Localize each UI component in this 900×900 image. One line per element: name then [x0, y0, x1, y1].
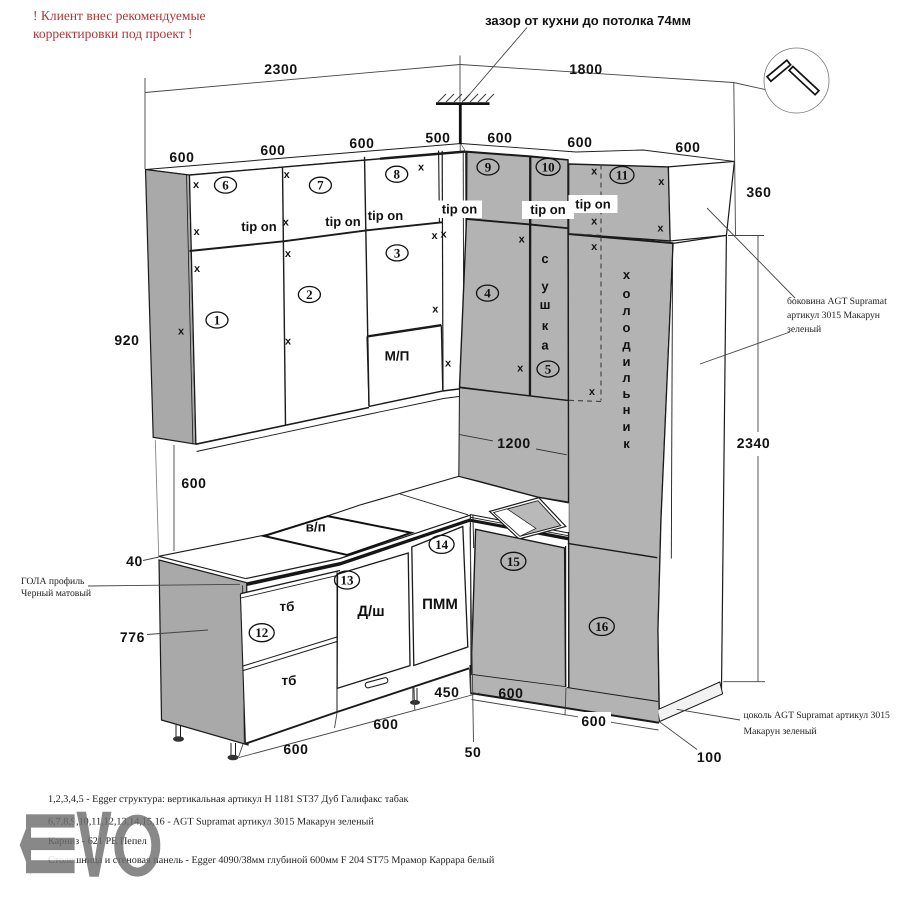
svg-text:у: у — [541, 279, 549, 294]
svg-text:с: с — [541, 251, 548, 266]
svg-text:x: x — [589, 386, 596, 398]
svg-text:л: л — [622, 370, 630, 385]
svg-text:600: 600 — [581, 713, 606, 729]
svg-text:2: 2 — [306, 287, 313, 302]
svg-text:7: 7 — [317, 178, 324, 193]
svg-text:600: 600 — [373, 716, 398, 732]
svg-text:2300: 2300 — [264, 61, 298, 77]
svg-text:tip on: tip on — [241, 219, 276, 234]
svg-text:tip on: tip on — [442, 202, 477, 217]
svg-text:x: x — [432, 304, 439, 316]
svg-text:x: x — [283, 217, 290, 229]
svg-text:x: x — [284, 169, 291, 181]
svg-text:16: 16 — [595, 619, 609, 634]
svg-text:н: н — [623, 402, 631, 417]
svg-text:x: x — [519, 234, 526, 246]
svg-text:д: д — [622, 337, 631, 352]
svg-text:и: и — [623, 354, 631, 369]
svg-text:x: x — [445, 358, 452, 370]
svg-text:6: 6 — [222, 178, 229, 193]
svg-text:40: 40 — [126, 553, 143, 569]
svg-text:! Клиент внес рекомендуемые: ! Клиент внес рекомендуемые — [33, 8, 206, 23]
svg-text:50: 50 — [465, 744, 482, 760]
svg-text:Д/ш: Д/ш — [357, 603, 384, 620]
svg-text:тб: тб — [282, 673, 297, 688]
svg-text:к: к — [623, 436, 630, 451]
svg-text:600: 600 — [181, 475, 206, 491]
svg-text:л: л — [622, 303, 630, 318]
svg-text:Черный матовый: Черный матовый — [21, 588, 91, 599]
svg-text:ГОЛА профиль: ГОЛА профиль — [21, 576, 85, 587]
svg-text:x: x — [418, 162, 425, 174]
svg-text:8: 8 — [393, 167, 400, 182]
svg-text:15: 15 — [507, 554, 521, 569]
svg-text:ш: ш — [540, 297, 551, 312]
svg-text:600: 600 — [675, 139, 700, 155]
svg-text:Столешница и стеновая панель -: Столешница и стеновая панель - Egger 409… — [48, 855, 495, 866]
svg-text:x: x — [285, 248, 292, 260]
svg-text:x: x — [193, 226, 200, 238]
svg-text:2340: 2340 — [737, 435, 771, 451]
svg-text:ПММ: ПММ — [422, 596, 458, 613]
svg-text:x: x — [591, 216, 598, 228]
svg-text:13: 13 — [341, 573, 355, 588]
svg-text:зеленый: зеленый — [787, 324, 821, 335]
svg-text:артикул 3015 Макарун: артикул 3015 Макарун — [787, 310, 880, 321]
svg-text:x: x — [591, 241, 598, 253]
svg-text:450: 450 — [434, 684, 459, 700]
svg-text:о: о — [623, 286, 631, 301]
svg-text:ь: ь — [623, 386, 631, 401]
svg-text:М/П: М/П — [385, 349, 410, 364]
svg-text:tip on: tip on — [368, 208, 403, 223]
svg-text:tip on: tip on — [530, 202, 565, 217]
svg-text:к: к — [542, 318, 549, 333]
svg-text:1,2,3,4,5 - Egger структура: в: 1,2,3,4,5 - Egger структура: вертикальна… — [48, 794, 409, 805]
svg-text:х: х — [623, 267, 631, 282]
svg-text:зазор от кухни до потолка 74мм: зазор от кухни до потолка 74мм — [485, 13, 691, 28]
svg-text:tip on: tip on — [575, 197, 610, 212]
svg-text:10: 10 — [542, 159, 555, 174]
svg-text:x: x — [432, 230, 439, 242]
svg-text:в/п: в/п — [306, 520, 326, 535]
svg-text:x: x — [178, 326, 185, 338]
svg-text:тб: тб — [280, 599, 295, 614]
svg-text:600: 600 — [260, 142, 285, 158]
svg-text:14: 14 — [435, 537, 449, 552]
svg-text:11: 11 — [616, 168, 628, 183]
svg-text:x: x — [657, 223, 664, 235]
svg-text:корректировки под проект !: корректировки под проект ! — [33, 26, 193, 41]
svg-text:и: и — [623, 419, 631, 434]
svg-text:x: x — [193, 179, 200, 191]
svg-text:x: x — [591, 166, 598, 178]
svg-text:776: 776 — [120, 629, 145, 645]
svg-text:600: 600 — [487, 130, 512, 146]
svg-text:1800: 1800 — [569, 61, 603, 77]
svg-text:x: x — [517, 363, 524, 375]
svg-text:tip on: tip on — [325, 214, 360, 229]
svg-text:600: 600 — [349, 135, 374, 151]
svg-text:360: 360 — [746, 184, 771, 200]
svg-text:920: 920 — [114, 332, 139, 348]
svg-text:3: 3 — [394, 245, 401, 260]
svg-text:100: 100 — [697, 749, 722, 765]
svg-text:600: 600 — [498, 685, 523, 701]
svg-text:12: 12 — [255, 625, 268, 640]
svg-text:Макарун зеленый: Макарун зеленый — [744, 726, 817, 737]
svg-text:x: x — [441, 228, 448, 240]
svg-text:x: x — [658, 176, 665, 188]
svg-text:x: x — [194, 263, 201, 275]
svg-text:600: 600 — [567, 134, 592, 150]
svg-text:500: 500 — [425, 130, 450, 146]
svg-text:цоколь AGT Supramat артикул 30: цоколь AGT Supramat артикул 3015 — [744, 710, 891, 721]
svg-text:4: 4 — [484, 286, 491, 301]
svg-text:600: 600 — [169, 149, 194, 165]
svg-text:6,7,8,9,10,11,12,13,14,15,16 -: 6,7,8,9,10,11,12,13,14,15,16 - AGT Supra… — [48, 817, 374, 828]
svg-text:5: 5 — [545, 362, 552, 377]
svg-text:x: x — [285, 336, 292, 348]
svg-text:а: а — [541, 338, 549, 353]
svg-text:1: 1 — [214, 313, 221, 328]
svg-text:о: о — [623, 320, 631, 335]
svg-text:600: 600 — [283, 741, 308, 757]
svg-text:9: 9 — [485, 160, 492, 175]
svg-text:боковина AGT Supramat: боковина AGT Supramat — [787, 296, 887, 307]
svg-text:1200: 1200 — [497, 435, 531, 451]
